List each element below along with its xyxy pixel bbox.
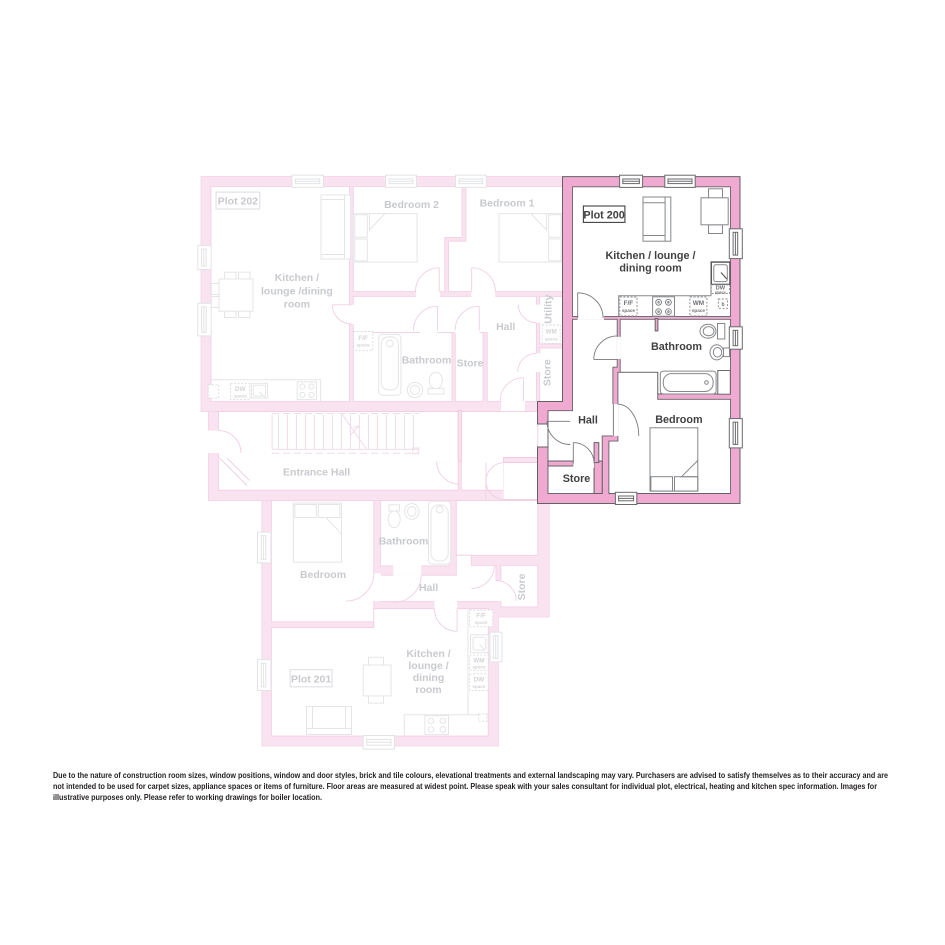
svg-text:space: space [545,337,558,342]
svg-text:DW: DW [474,676,486,683]
svg-text:Store: Store [516,573,528,600]
svg-text:F/F: F/F [358,335,368,342]
svg-text:Plot 201: Plot 201 [291,673,331,685]
svg-text:F/F: F/F [476,613,486,620]
svg-text:space: space [357,343,370,348]
svg-text:Bathroom: Bathroom [651,341,702,353]
svg-text:illustrative purposes only. Pl: illustrative purposes only. Please refer… [53,793,322,802]
svg-text:dining: dining [413,672,445,684]
svg-text:WM: WM [693,300,704,307]
svg-text:Hall: Hall [578,415,598,427]
svg-text:Plot 202: Plot 202 [218,196,258,208]
svg-text:Entrance Hall: Entrance Hall [283,466,350,478]
svg-text:lounge /dining: lounge /dining [261,285,333,297]
svg-text:Plot 200: Plot 200 [583,209,624,221]
svg-text:space: space [234,393,247,398]
svg-text:Bedroom: Bedroom [300,569,346,581]
svg-text:Bedroom: Bedroom [655,414,702,426]
svg-text:Store: Store [457,358,484,370]
svg-text:F/F: F/F [624,300,634,307]
svg-text:dining room: dining room [619,263,681,275]
svg-text:room: room [415,684,441,696]
svg-text:Store: Store [541,359,553,386]
svg-text:Hall: Hall [419,582,438,594]
svg-text:space: space [622,308,635,313]
svg-text:space: space [715,290,727,295]
svg-text:b: b [721,302,724,308]
svg-text:space: space [692,308,705,313]
svg-text:Utility: Utility [543,294,555,323]
svg-text:Bathroom: Bathroom [402,355,452,367]
svg-text:Due to the nature of construct: Due to the nature of construction room s… [53,771,888,780]
svg-text:WM: WM [546,329,557,336]
svg-text:Kitchen / lounge /: Kitchen / lounge / [606,250,696,262]
svg-text:Kitchen /: Kitchen / [275,272,319,284]
svg-text:Hall: Hall [496,321,515,333]
svg-text:space: space [475,620,488,625]
svg-text:DW: DW [235,386,247,393]
svg-text:Bedroom 2: Bedroom 2 [384,199,439,211]
svg-text:space: space [472,665,485,670]
svg-text:WM: WM [473,657,484,664]
svg-text:not intended to be used for ca: not intended to be used for carpet sizes… [53,782,877,791]
svg-text:Bathroom: Bathroom [379,536,429,548]
svg-text:lounge /: lounge / [408,660,448,672]
svg-text:Store: Store [563,473,591,485]
svg-text:room: room [284,298,310,310]
svg-text:Kitchen /: Kitchen / [406,648,450,660]
svg-text:Bedroom 1: Bedroom 1 [480,197,535,209]
svg-text:space: space [472,684,485,689]
